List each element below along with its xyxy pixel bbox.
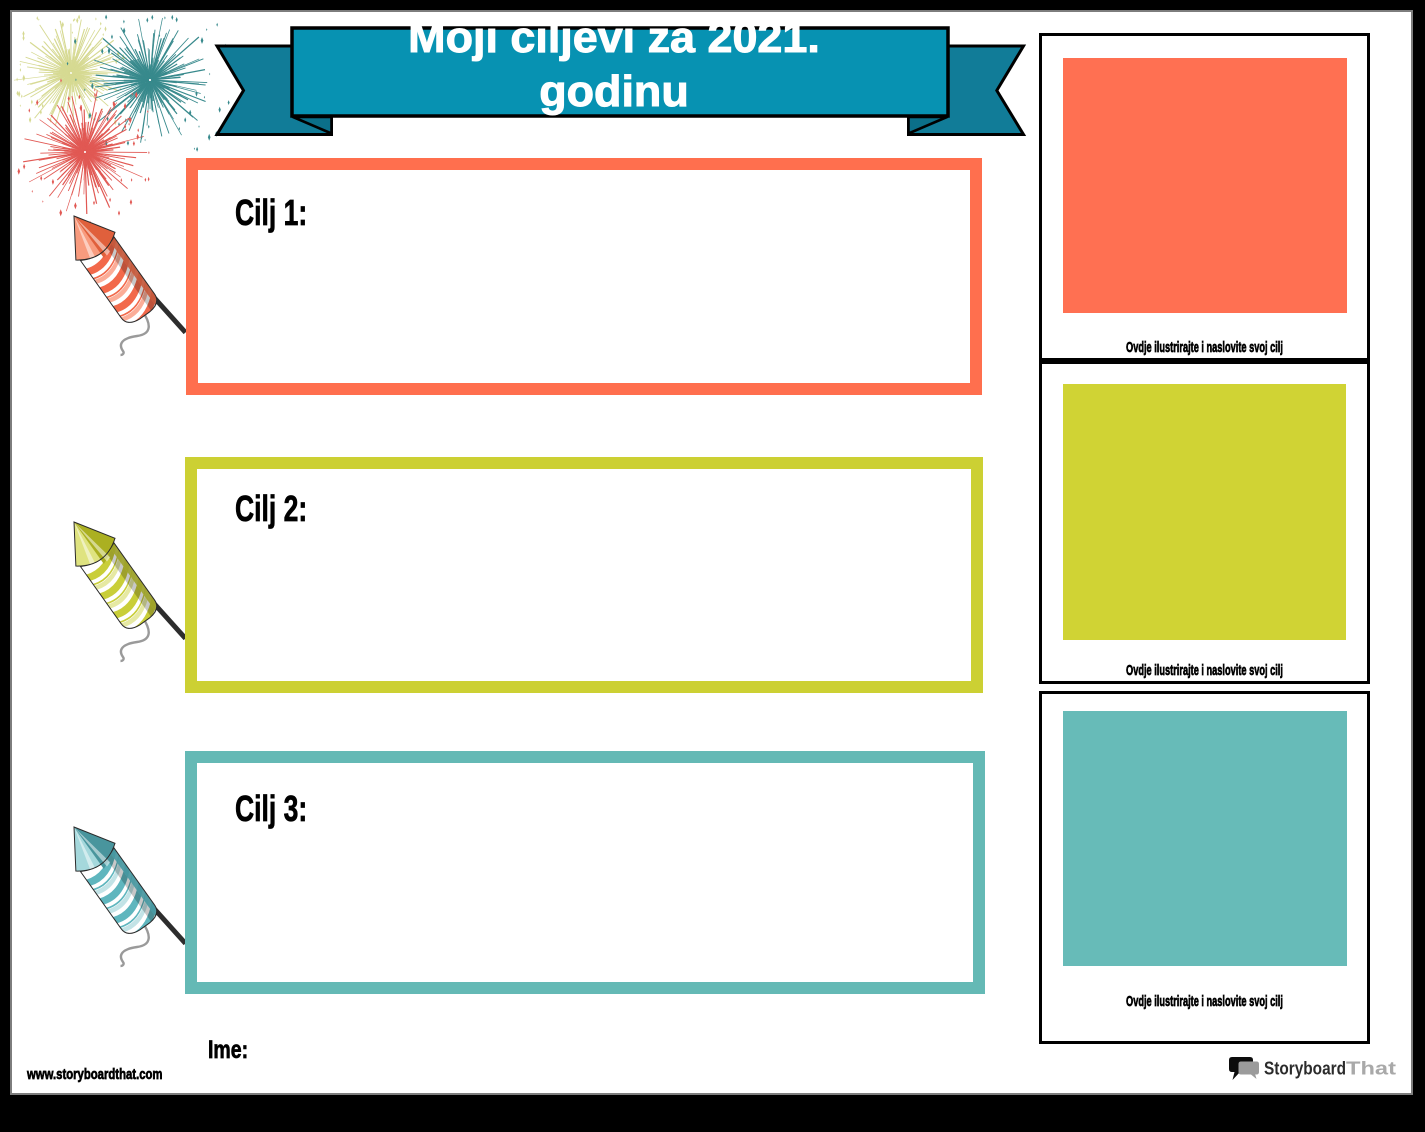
svg-text:Storyboard: Storyboard	[1264, 1059, 1346, 1079]
svg-text:That: That	[1346, 1059, 1396, 1079]
